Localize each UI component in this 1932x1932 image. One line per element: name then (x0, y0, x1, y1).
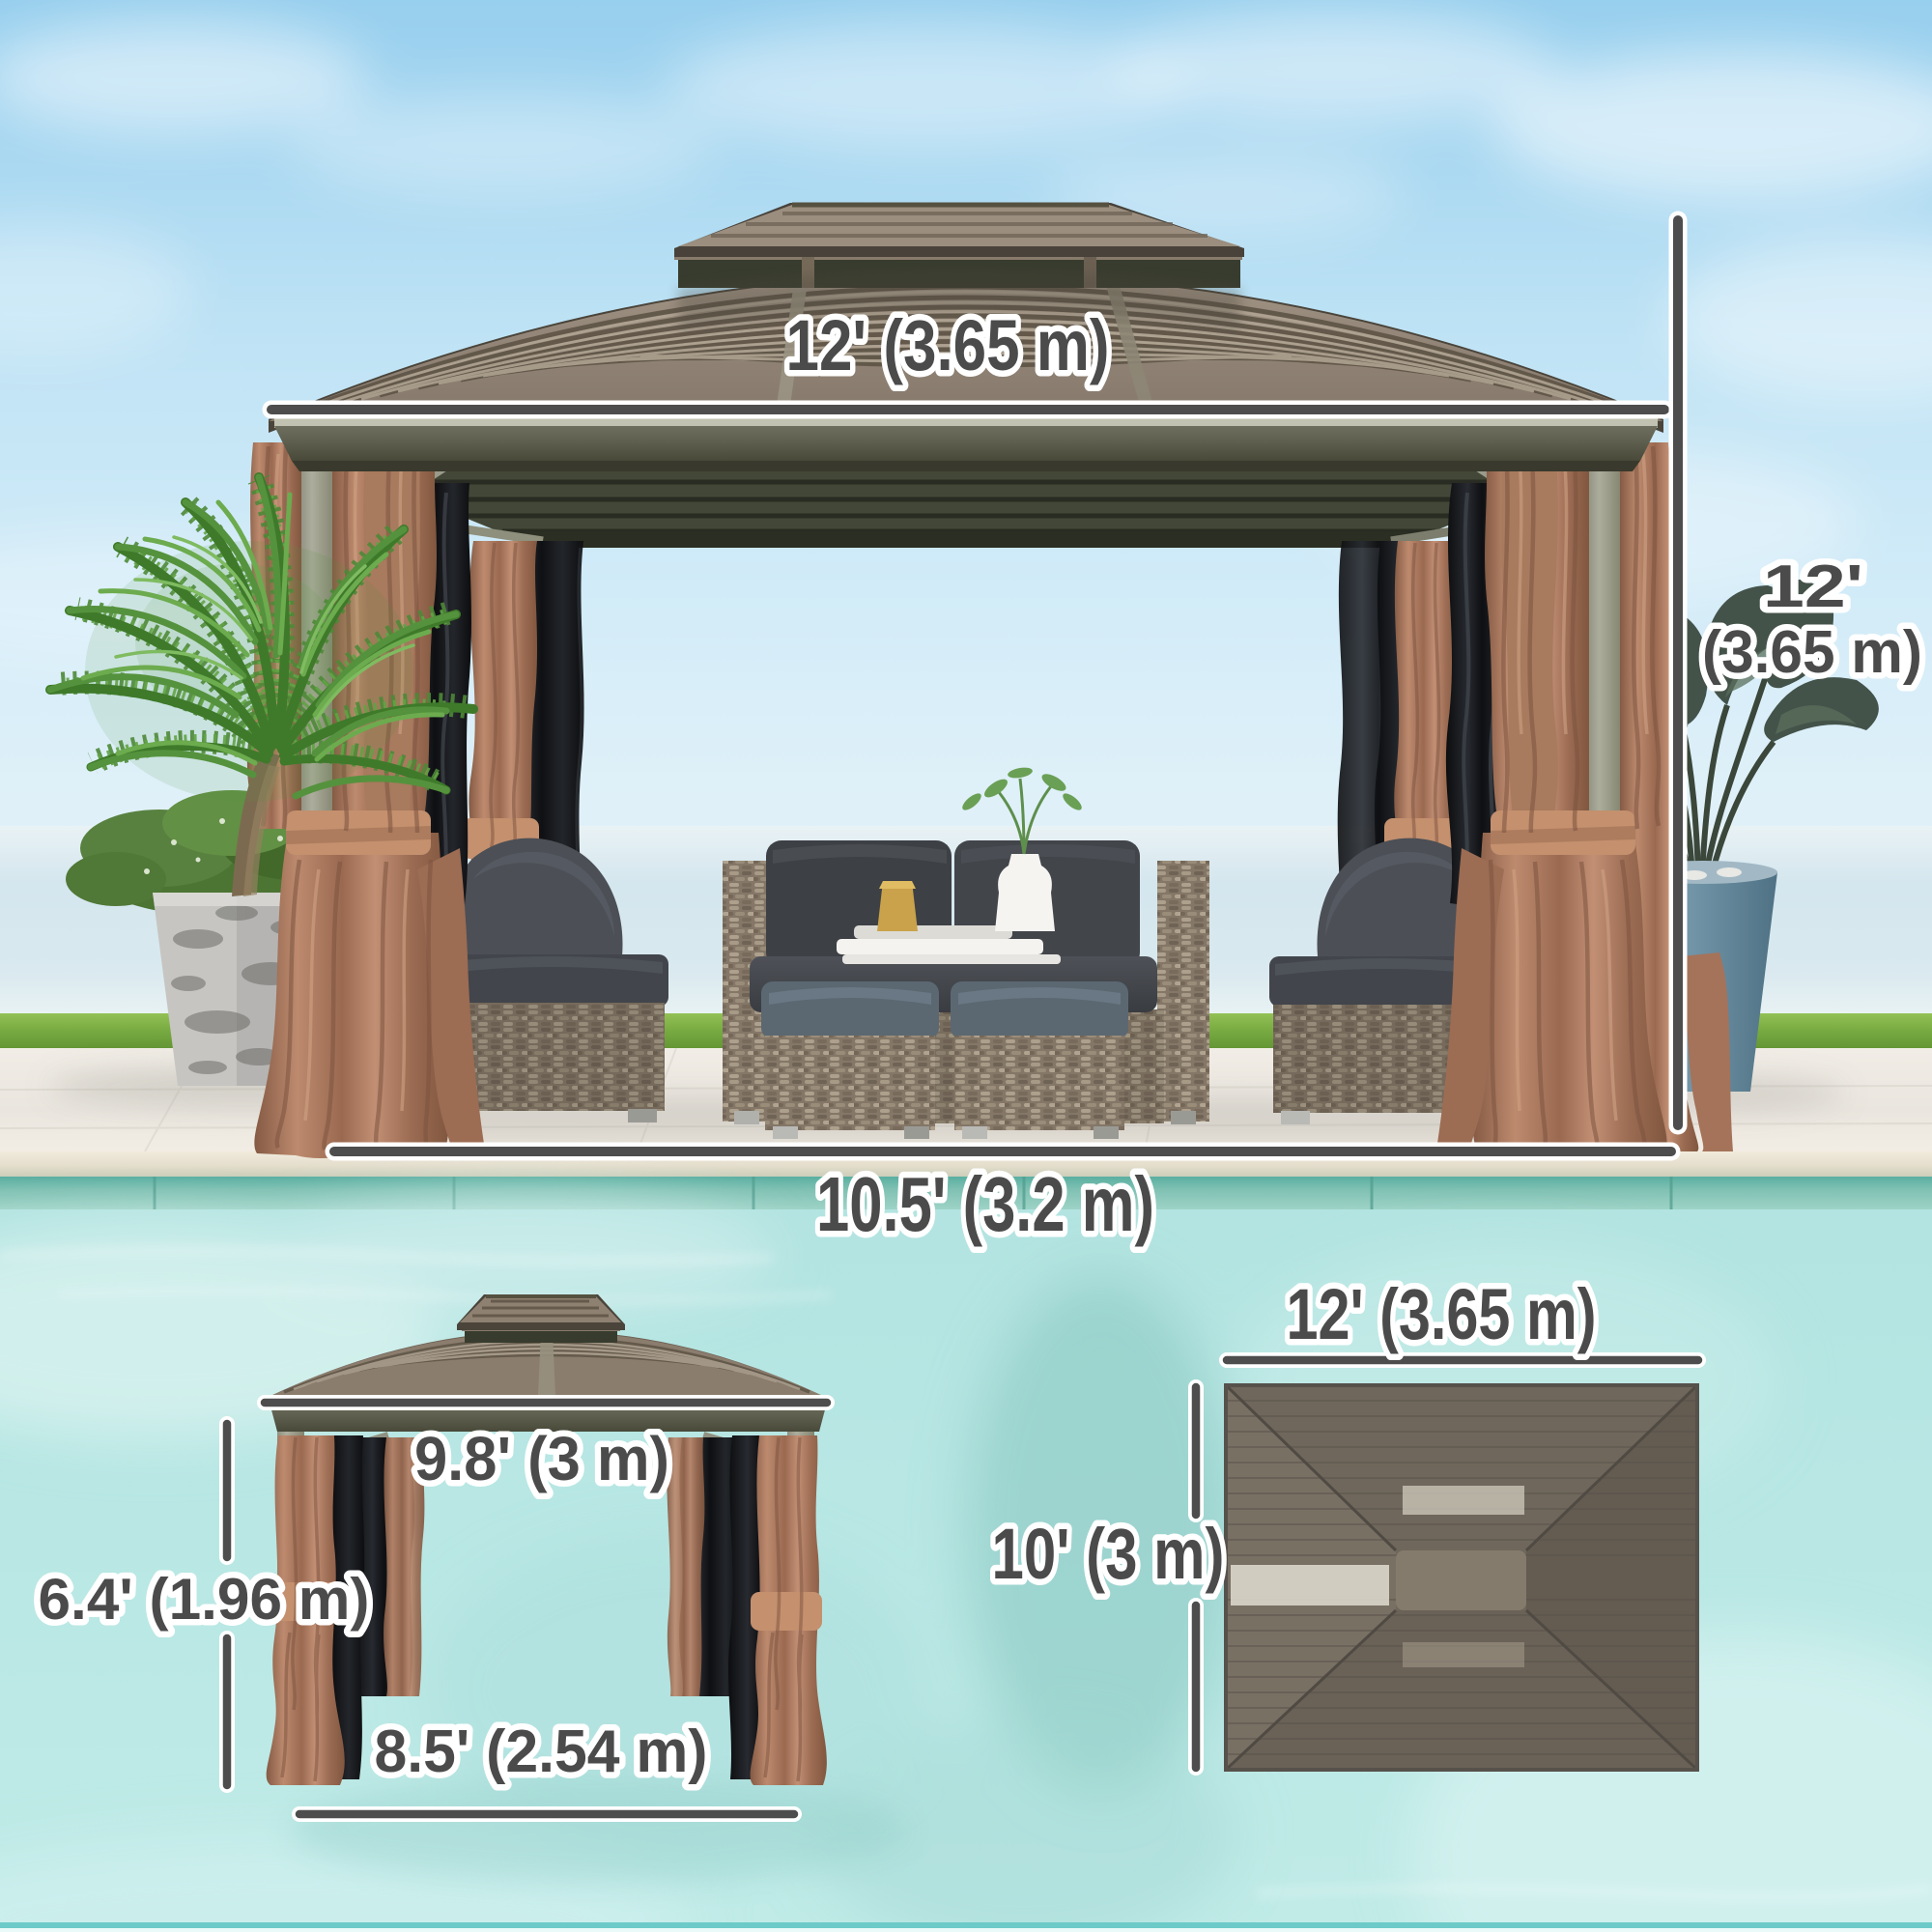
svg-text:6.4' (1.96 m): 6.4' (1.96 m) (39, 1567, 370, 1632)
svg-text:12' (3.65 m): 12' (3.65 m) (1287, 1274, 1597, 1354)
svg-text:9.8' (3 m): 9.8' (3 m) (414, 1424, 669, 1493)
svg-text:(3.65 m): (3.65 m) (1702, 619, 1922, 686)
svg-text:10.5' (3.2 m): 10.5' (3.2 m) (816, 1161, 1154, 1247)
svg-text:10' (3 m): 10' (3 m) (992, 1514, 1225, 1594)
svg-text:12' (3.65 m): 12' (3.65 m) (786, 305, 1110, 385)
svg-text:8.5' (2.54 m): 8.5' (2.54 m) (375, 1719, 708, 1785)
svg-text:12': 12' (1763, 554, 1863, 620)
